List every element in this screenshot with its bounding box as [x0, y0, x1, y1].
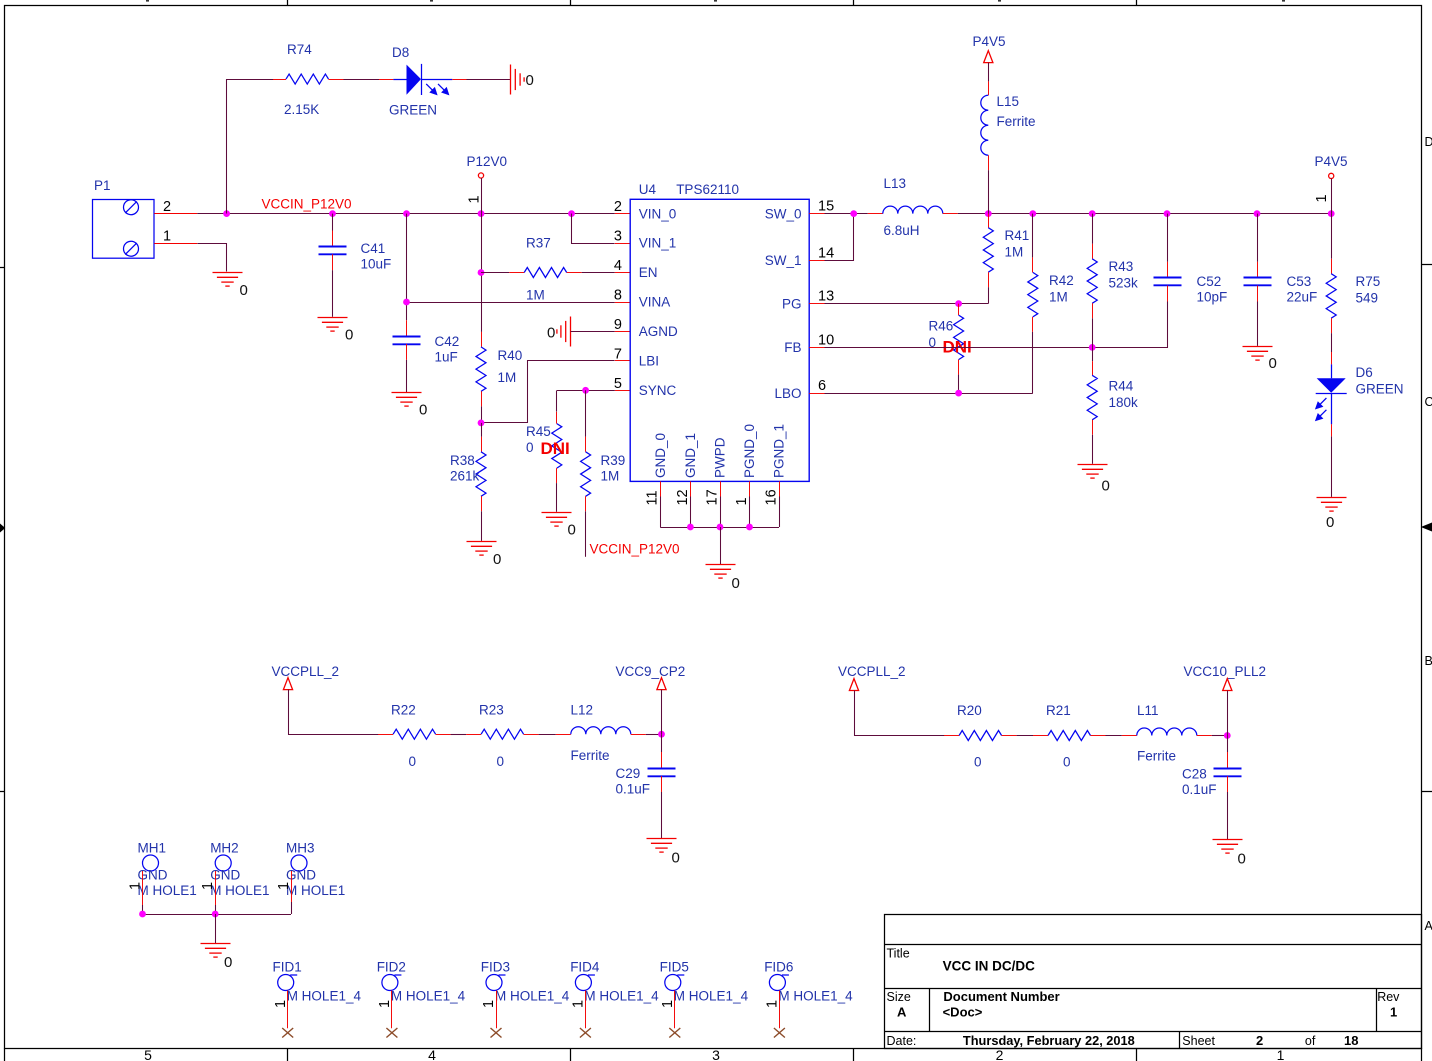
svg-text:3: 3 — [614, 229, 622, 245]
svg-text:Ferrite: Ferrite — [997, 114, 1036, 129]
svg-text:2.15K: 2.15K — [284, 102, 319, 117]
svg-text:M HOLE1_4: M HOLE1_4 — [391, 989, 466, 1004]
svg-text:Ferrite: Ferrite — [1137, 749, 1176, 764]
svg-text:VIN_1: VIN_1 — [639, 236, 677, 251]
svg-text:10uF: 10uF — [361, 257, 392, 272]
svg-text:1: 1 — [128, 882, 144, 890]
svg-text:C29: C29 — [616, 766, 641, 781]
svg-text:1uF: 1uF — [435, 350, 458, 365]
svg-text:9: 9 — [614, 317, 622, 333]
svg-text:1: 1 — [571, 1000, 587, 1008]
svg-text:22uF: 22uF — [1287, 290, 1318, 305]
svg-text:LBO: LBO — [774, 386, 801, 401]
svg-text:0: 0 — [493, 551, 501, 568]
svg-text:LBI: LBI — [639, 354, 659, 369]
svg-text:VCCIN_P12V0: VCCIN_P12V0 — [262, 197, 352, 212]
svg-text:2: 2 — [1256, 1033, 1263, 1048]
svg-text:1M: 1M — [601, 469, 620, 484]
svg-text:R42: R42 — [1049, 273, 1074, 288]
svg-text:523k: 523k — [1109, 276, 1139, 291]
svg-text:0: 0 — [568, 522, 576, 539]
svg-text:R22: R22 — [391, 703, 416, 718]
svg-text:3: 3 — [712, 1047, 720, 1061]
svg-text:1: 1 — [276, 882, 292, 890]
svg-text:6: 6 — [818, 378, 826, 394]
svg-text:VCCIN_P12V0: VCCIN_P12V0 — [590, 542, 680, 557]
svg-text:GREEN: GREEN — [389, 103, 437, 118]
svg-text:0: 0 — [547, 325, 555, 342]
svg-text:1: 1 — [200, 882, 216, 890]
svg-text:1: 1 — [1314, 194, 1330, 202]
svg-text:6.8uH: 6.8uH — [884, 223, 920, 238]
svg-text:P12V0: P12V0 — [467, 154, 508, 169]
svg-text:13: 13 — [818, 289, 834, 305]
svg-text:0.1uF: 0.1uF — [1182, 782, 1217, 797]
svg-text:R40: R40 — [498, 348, 523, 363]
svg-text:5: 5 — [144, 1047, 152, 1061]
svg-text:VCC10_PLL2: VCC10_PLL2 — [1184, 664, 1267, 679]
svg-text:R45: R45 — [526, 424, 551, 439]
svg-text:0: 0 — [1102, 478, 1110, 495]
svg-text:AGND: AGND — [639, 324, 678, 339]
svg-text:12: 12 — [675, 489, 691, 505]
svg-text:C52: C52 — [1197, 274, 1222, 289]
svg-text:1M: 1M — [1049, 290, 1068, 305]
svg-text:D8: D8 — [392, 45, 409, 60]
svg-text:SYNC: SYNC — [639, 383, 677, 398]
svg-text:0: 0 — [240, 282, 248, 299]
svg-text:0: 0 — [419, 402, 427, 419]
svg-text:VCCPLL_2: VCCPLL_2 — [838, 664, 906, 679]
svg-text:1: 1 — [377, 1000, 393, 1008]
svg-text:PGND_0: PGND_0 — [742, 424, 757, 478]
svg-text:A: A — [1425, 919, 1432, 933]
svg-text:1: 1 — [163, 229, 171, 245]
svg-text:11: 11 — [645, 490, 661, 505]
svg-text:0: 0 — [1238, 851, 1246, 868]
svg-text:L11: L11 — [1137, 703, 1159, 718]
svg-text:L12: L12 — [571, 703, 594, 718]
svg-text:1M: 1M — [498, 370, 517, 385]
svg-text:0: 0 — [345, 327, 353, 344]
svg-text:VCCPLL_2: VCCPLL_2 — [272, 664, 340, 679]
svg-text:0: 0 — [1269, 355, 1277, 372]
svg-text:4: 4 — [428, 1047, 436, 1061]
svg-text:VCC IN DC/DC: VCC IN DC/DC — [943, 959, 1036, 974]
svg-text:SW_0: SW_0 — [765, 206, 802, 221]
svg-text:8: 8 — [614, 288, 622, 304]
svg-text:Thursday, February 22, 2018: Thursday, February 22, 2018 — [963, 1033, 1135, 1048]
svg-text:FID4: FID4 — [570, 960, 600, 975]
svg-text:R43: R43 — [1109, 259, 1134, 274]
svg-text:14: 14 — [818, 246, 834, 262]
svg-text:SW_1: SW_1 — [765, 253, 802, 268]
svg-text:R41: R41 — [1005, 228, 1030, 243]
svg-text:M HOLE1_4: M HOLE1_4 — [584, 989, 659, 1004]
svg-text:15: 15 — [818, 199, 834, 215]
svg-text:MH2: MH2 — [210, 841, 239, 856]
svg-text:1: 1 — [1277, 1047, 1285, 1061]
svg-text:0: 0 — [409, 754, 417, 769]
svg-text:of: of — [1305, 1034, 1316, 1048]
svg-text:GND_1: GND_1 — [683, 433, 698, 478]
svg-text:DNI: DNI — [541, 439, 570, 458]
svg-text:MH1: MH1 — [138, 841, 167, 856]
svg-text:17: 17 — [705, 489, 721, 505]
svg-text:PGND_1: PGND_1 — [772, 424, 787, 478]
svg-text:0: 0 — [974, 755, 982, 770]
svg-text:1: 1 — [765, 1000, 781, 1008]
svg-text:R37: R37 — [526, 236, 551, 251]
svg-text:D: D — [1425, 135, 1432, 149]
svg-text:1: 1 — [1390, 1005, 1397, 1020]
svg-text:0: 0 — [224, 954, 232, 971]
svg-text:0.1uF: 0.1uF — [616, 782, 651, 797]
svg-text:R74: R74 — [287, 42, 312, 57]
svg-text:0: 0 — [526, 72, 534, 89]
svg-text:R38: R38 — [450, 453, 475, 468]
svg-text:Document Number: Document Number — [943, 989, 1059, 1004]
svg-text:U4: U4 — [639, 182, 657, 197]
svg-text:P1: P1 — [94, 178, 111, 193]
svg-text:Rev: Rev — [1377, 990, 1400, 1004]
svg-text:L13: L13 — [884, 176, 907, 191]
svg-text:Date:: Date: — [887, 1034, 917, 1048]
svg-text:B: B — [1425, 654, 1432, 668]
svg-text:R75: R75 — [1356, 274, 1381, 289]
svg-text:549: 549 — [1356, 291, 1379, 306]
svg-text:Ferrite: Ferrite — [571, 748, 610, 763]
svg-text:1: 1 — [481, 1000, 497, 1008]
svg-text:Title: Title — [887, 947, 910, 961]
svg-text:GND: GND — [210, 868, 240, 883]
svg-text:P4V5: P4V5 — [973, 34, 1006, 49]
svg-text:1M: 1M — [1005, 245, 1024, 260]
svg-text:Size: Size — [887, 990, 911, 1004]
svg-text:VINA: VINA — [639, 295, 671, 310]
svg-text:C42: C42 — [435, 334, 460, 349]
svg-text:VCC9_CP2: VCC9_CP2 — [616, 664, 686, 679]
svg-text:FB: FB — [784, 340, 801, 355]
svg-text:R39: R39 — [601, 453, 626, 468]
svg-text:PWPD: PWPD — [713, 437, 728, 478]
svg-text:GND_0: GND_0 — [653, 433, 668, 478]
svg-text:10pF: 10pF — [1197, 290, 1228, 305]
svg-text:GREEN: GREEN — [1356, 382, 1404, 397]
svg-text:1: 1 — [660, 1000, 676, 1008]
svg-text:4: 4 — [614, 258, 622, 274]
svg-text:1M: 1M — [526, 288, 545, 303]
svg-text:7: 7 — [614, 347, 622, 363]
svg-text:C53: C53 — [1287, 274, 1312, 289]
svg-text:2: 2 — [163, 199, 171, 215]
svg-text:D6: D6 — [1356, 365, 1373, 380]
svg-text:R20: R20 — [957, 703, 982, 718]
svg-text:18: 18 — [1344, 1033, 1358, 1048]
svg-text:10: 10 — [818, 332, 834, 348]
svg-text:0: 0 — [732, 575, 740, 592]
svg-text:M HOLE1: M HOLE1 — [286, 883, 345, 898]
svg-text:1: 1 — [273, 1000, 289, 1008]
svg-text:M HOLE1: M HOLE1 — [138, 883, 197, 898]
svg-text:261k: 261k — [450, 469, 480, 484]
svg-text:180k: 180k — [1109, 395, 1139, 410]
svg-text:C41: C41 — [361, 241, 386, 256]
svg-text:FID5: FID5 — [660, 960, 689, 975]
svg-text:0: 0 — [526, 440, 534, 455]
svg-text:2: 2 — [996, 1047, 1004, 1061]
svg-text:M HOLE1_4: M HOLE1_4 — [674, 989, 749, 1004]
svg-text:FID3: FID3 — [481, 960, 510, 975]
svg-text:R23: R23 — [479, 703, 504, 718]
svg-text:0: 0 — [1063, 755, 1071, 770]
svg-text:M HOLE1_4: M HOLE1_4 — [287, 989, 362, 1004]
svg-text:A: A — [897, 1005, 907, 1020]
svg-text:VIN_0: VIN_0 — [639, 206, 677, 221]
svg-text:16: 16 — [764, 489, 780, 505]
svg-text:FID2: FID2 — [377, 960, 406, 975]
svg-text:FID1: FID1 — [273, 960, 302, 975]
svg-text:EN: EN — [639, 265, 658, 280]
svg-text:PG: PG — [782, 296, 802, 311]
svg-text:2: 2 — [614, 199, 622, 215]
svg-text:C: C — [1425, 395, 1432, 409]
svg-text:P4V5: P4V5 — [1315, 154, 1348, 169]
svg-text:M HOLE1_4: M HOLE1_4 — [778, 989, 853, 1004]
svg-text:R21: R21 — [1046, 703, 1071, 718]
svg-text:5: 5 — [614, 376, 622, 392]
svg-text:GND: GND — [286, 868, 316, 883]
svg-text:Sheet: Sheet — [1182, 1034, 1215, 1048]
svg-text:TPS62110: TPS62110 — [676, 182, 739, 197]
svg-text:R44: R44 — [1109, 379, 1134, 394]
svg-text:<Doc>: <Doc> — [943, 1005, 983, 1020]
svg-text:0: 0 — [1326, 514, 1334, 531]
svg-text:1: 1 — [467, 195, 483, 203]
svg-text:0: 0 — [672, 850, 680, 867]
svg-text:R46: R46 — [929, 319, 954, 334]
svg-text:FID6: FID6 — [764, 960, 793, 975]
svg-text:M HOLE1: M HOLE1 — [210, 883, 269, 898]
svg-text:0: 0 — [497, 754, 505, 769]
svg-text:1: 1 — [734, 497, 750, 505]
svg-text:M HOLE1_4: M HOLE1_4 — [495, 989, 570, 1004]
svg-text:MH3: MH3 — [286, 841, 315, 856]
svg-text:L15: L15 — [997, 94, 1020, 109]
svg-text:C28: C28 — [1182, 767, 1207, 782]
